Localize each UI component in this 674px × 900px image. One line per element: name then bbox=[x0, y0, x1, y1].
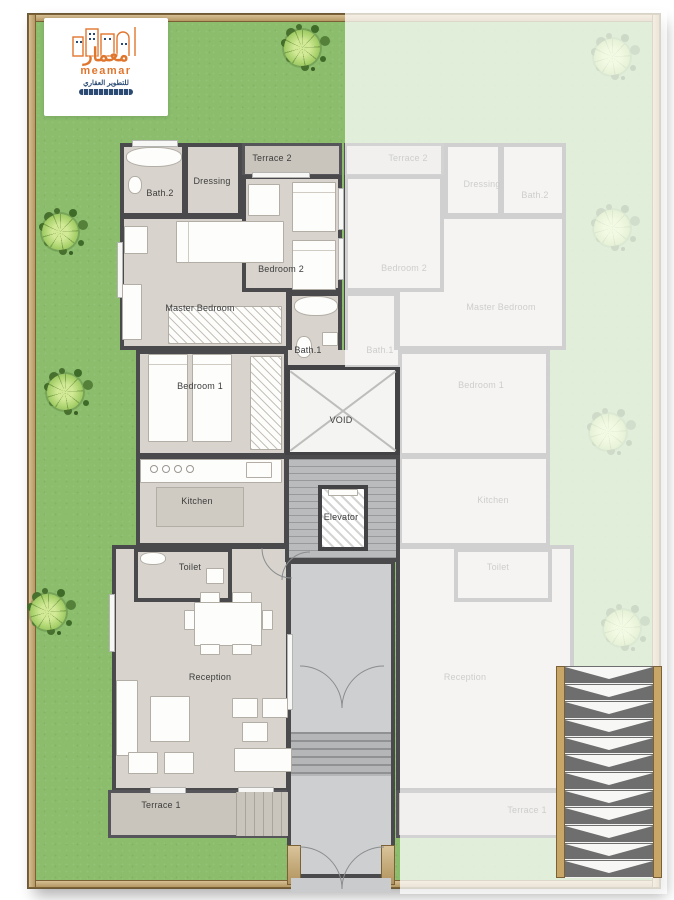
logo-brand-latin: meamar bbox=[80, 65, 131, 77]
label-terrace2: Terrace 2 bbox=[252, 153, 291, 163]
label-bedroom1: Bedroom 1 bbox=[177, 381, 223, 391]
pergola-rail bbox=[556, 666, 565, 878]
label-bath2: Bath.2 bbox=[146, 188, 173, 198]
label-elevator: Elevator bbox=[324, 512, 359, 522]
label-terrace1: Terrace 1 bbox=[141, 800, 180, 810]
label-void: VOID bbox=[330, 415, 353, 425]
floor-plan-canvas: Terrace 2 Dressing Bath.2 Bedroom 2 Mast… bbox=[0, 0, 674, 900]
mirror-unit-fade-overlay bbox=[345, 10, 667, 367]
tree-icon bbox=[34, 206, 86, 258]
logo-tagline-chip bbox=[79, 89, 133, 95]
label-reception: Reception bbox=[189, 672, 231, 682]
label-master: Master Bedroom bbox=[165, 303, 234, 313]
pergola-louvers bbox=[556, 666, 662, 878]
label-kitchen: Kitchen bbox=[181, 496, 212, 506]
label-bath1: Bath.1 bbox=[294, 345, 321, 355]
label-bedroom2: Bedroom 2 bbox=[258, 264, 304, 274]
tree-icon bbox=[22, 586, 74, 638]
pergola-field bbox=[565, 666, 653, 878]
label-dressing: Dressing bbox=[193, 176, 230, 186]
tree-icon bbox=[39, 366, 91, 418]
label-toilet: Toilet bbox=[179, 562, 201, 572]
company-logo: معمار meamar للتطوير العقاري bbox=[44, 18, 168, 116]
pergola-rail bbox=[653, 666, 662, 878]
logo-tagline-arabic: للتطوير العقاري bbox=[83, 79, 129, 87]
tree-icon bbox=[276, 22, 328, 74]
logo-brand-arabic: معمار bbox=[83, 47, 128, 65]
